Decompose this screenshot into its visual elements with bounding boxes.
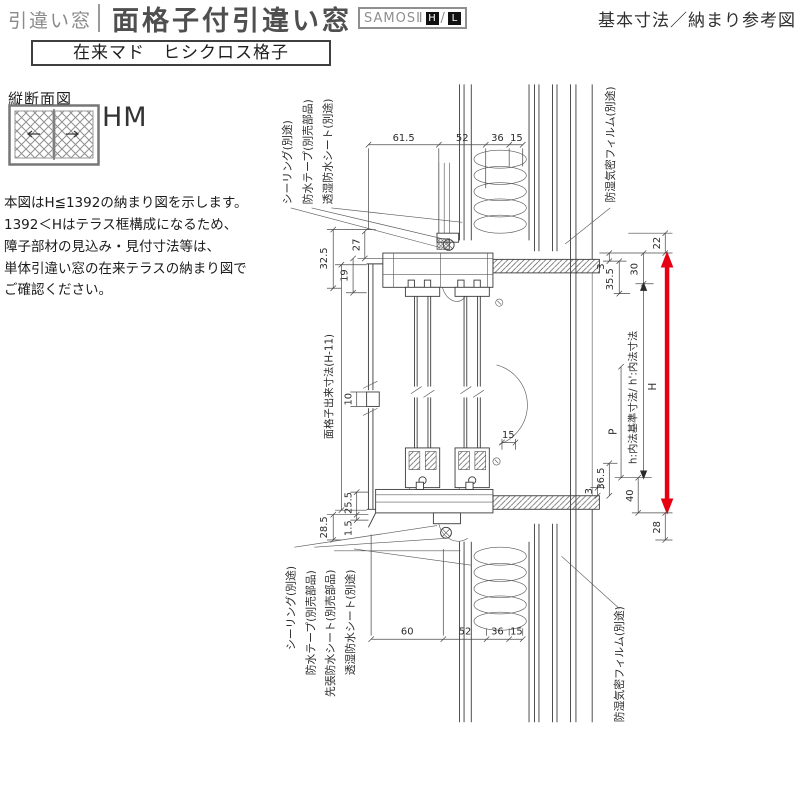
svg-text:52: 52: [459, 627, 472, 638]
svg-text:36: 36: [491, 133, 504, 144]
svg-text:25.5: 25.5: [343, 492, 354, 514]
dimension-inner-height: h:内法基準寸法/ h':内法寸法: [626, 282, 647, 480]
svg-text:h:内法基準寸法/ h':内法寸法: h:内法基準寸法/ h':内法寸法: [626, 331, 639, 464]
note-line: 本図はH≦1392の納まり図を示します。: [4, 193, 254, 215]
callouts-top: シーリング(別途) 防水テープ(別売部品) 透湿防水シート(別途) 防湿気密フィ…: [280, 86, 617, 247]
svg-text:60: 60: [401, 627, 414, 638]
dimension-mid-gap: 15: [499, 430, 518, 450]
dimension-right-head: 22 30 3 35.5: [596, 230, 673, 296]
svg-text:H: H: [647, 383, 659, 391]
svg-text:15: 15: [510, 133, 523, 144]
samos-grade-h-badge: H: [426, 12, 439, 25]
overall-height-arrow: H: [647, 251, 673, 514]
dimension-grille-height: 面格子出来寸法(H-11): [322, 262, 366, 513]
svg-text:22: 22: [652, 237, 663, 250]
callout-breathable-sheet-top: 透湿防水シート(別途): [320, 99, 334, 205]
sill-casing-board: [493, 496, 599, 510]
dimension-top: 61.5 52 36 15: [366, 133, 526, 233]
samos-logo: SAMOSⅡ H / L: [358, 7, 467, 29]
svg-text:P: P: [608, 429, 620, 435]
callout-pre-waterproof-sheet-bottom: 先張防水シート(別売部品): [323, 570, 337, 697]
note-line: 単体引違い窓の在来テラスの納まり図で: [4, 259, 254, 281]
outer-sash-profile: [455, 287, 489, 495]
dimension-grille-depth: 10: [343, 392, 366, 406]
reference-note: 基本寸法／納まり参考図: [598, 6, 796, 31]
svg-text:面格子出来寸法(H-11): 面格子出来寸法(H-11): [322, 334, 335, 439]
note-paragraph: 本図はH≦1392の納まり図を示します。 1392＜Hはテラス框構成になるため、…: [4, 193, 254, 302]
samos-grade-slash: /: [441, 11, 446, 26]
callout-sealing-top: シーリング(別途): [280, 120, 294, 204]
inner-sash-profile: [405, 287, 439, 495]
callout-vapor-film-top: 防湿気密フィルム(別途): [603, 86, 617, 202]
svg-text:15: 15: [510, 627, 523, 638]
svg-text:15: 15: [502, 430, 515, 441]
callouts-bottom: シーリング(別途) 防水テープ(別売部品) 先張防水シート(別売部品) 透湿防水…: [283, 526, 625, 723]
page-title: 面格子付引違い窓: [112, 0, 352, 38]
insulation-coil-top: [474, 150, 526, 233]
window-code: HM: [102, 102, 148, 133]
svg-text:27: 27: [351, 239, 362, 252]
callout-vapor-film-bottom: 防湿気密フィルム(別途): [612, 606, 626, 722]
note-line: ご確認ください。: [4, 280, 254, 302]
svg-text:3: 3: [584, 488, 595, 494]
svg-text:35.5: 35.5: [605, 268, 616, 290]
svg-text:30: 30: [629, 263, 640, 276]
note-line: 障子部材の見込み・見付寸法等は、: [4, 237, 254, 259]
head-casing-board: [493, 259, 599, 273]
samos-brand-text: SAMOSⅡ: [364, 11, 424, 26]
svg-text:40: 40: [625, 489, 636, 502]
callout-breathable-sheet-bottom: 透湿防水シート(別途): [343, 570, 357, 676]
svg-text:36.5: 36.5: [596, 468, 607, 490]
callout-waterproof-tape-bottom: 防水テープ(別売部品): [303, 570, 317, 675]
svg-text:28: 28: [652, 521, 663, 534]
callout-waterproof-tape-top: 防水テープ(別売部品): [301, 99, 315, 204]
svg-text:28.5: 28.5: [319, 516, 330, 538]
insulation-coil-bottom: [474, 547, 526, 630]
svg-text:1.5: 1.5: [343, 520, 354, 536]
wall-section-bottom: [460, 509, 593, 722]
svg-text:36: 36: [491, 627, 504, 638]
svg-text:52: 52: [456, 133, 469, 144]
callout-sealing-bottom: シーリング(別途): [283, 566, 297, 650]
svg-text:10: 10: [343, 393, 354, 406]
svg-text:32.5: 32.5: [319, 247, 330, 269]
sill-frame-profile: [368, 482, 493, 541]
section-drawing: 61.5 52 36 15 60 52 36 15: [240, 78, 800, 798]
title-divider: [98, 4, 100, 32]
dimension-left-sill: 25.5 1.5 28.5: [319, 489, 369, 542]
svg-text:61.5: 61.5: [393, 133, 415, 144]
samos-grade-l-badge: L: [448, 12, 461, 25]
subheader-box: 在来マド ヒシクロス格子: [31, 40, 331, 66]
window-category-label: 引違い窓: [8, 6, 92, 33]
window-thumbnail: [8, 104, 102, 168]
note-line: 1392＜Hはテラス框構成になるため、: [4, 215, 254, 237]
lock-reference-symbol: [493, 458, 500, 465]
face-grille-section: [363, 264, 383, 509]
